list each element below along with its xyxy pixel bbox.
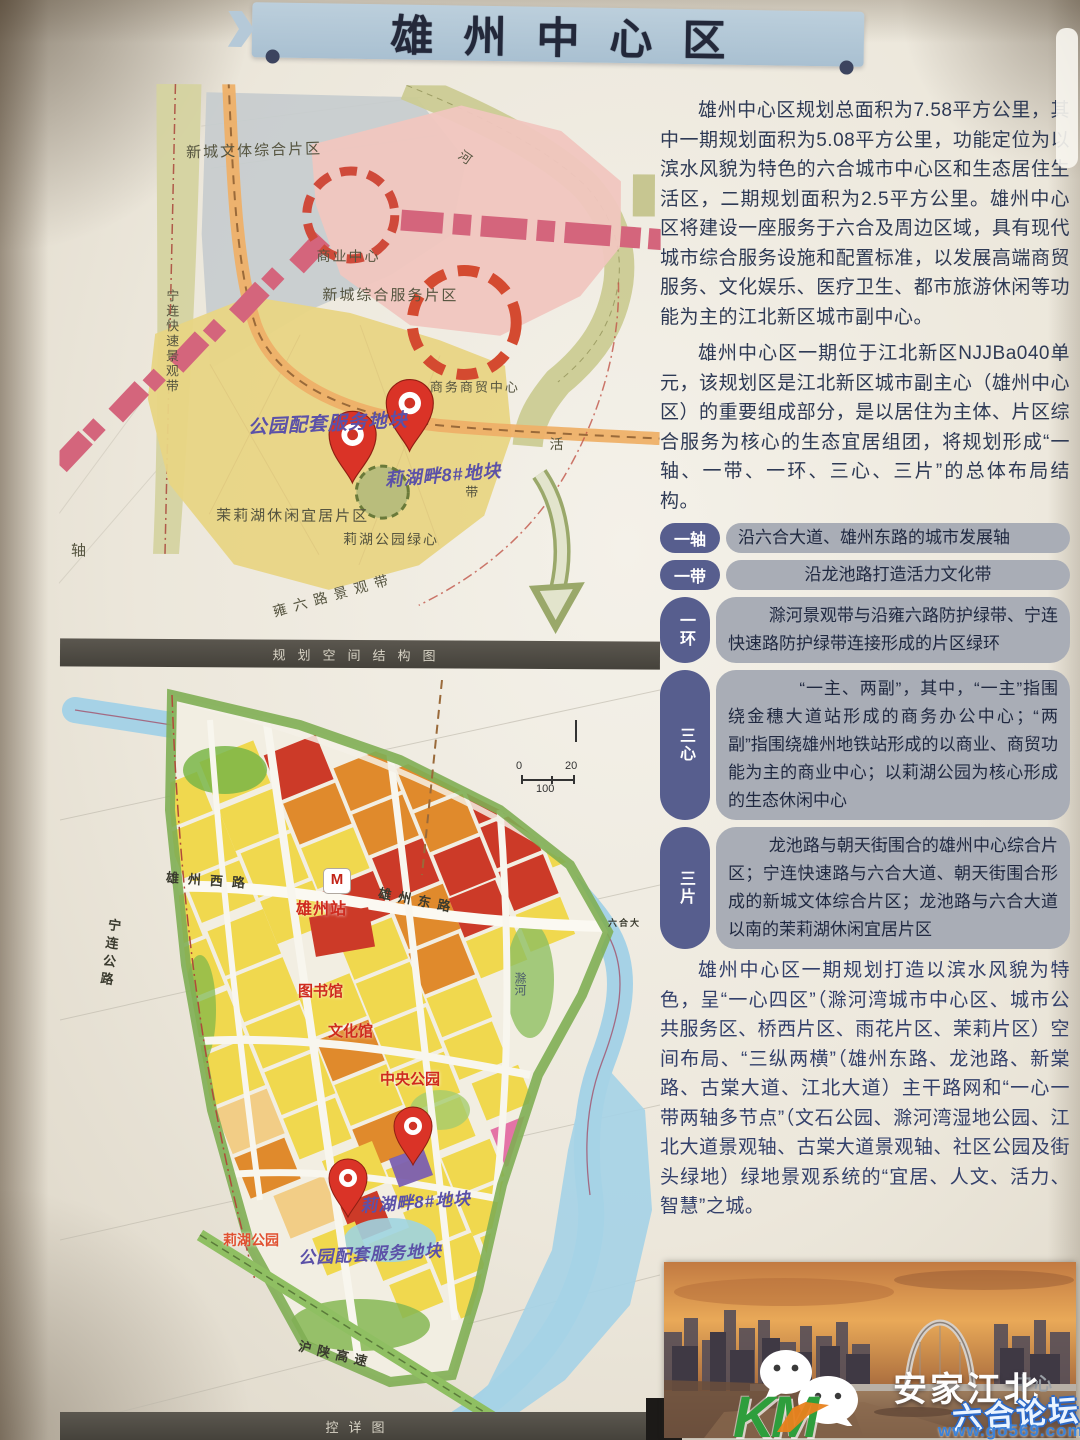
- structure-item-districts: 三片 龙池路与朝天街围合的雄州中心综合片区；宁连快速路与六合大道、朝天街围合形成…: [660, 827, 1070, 949]
- regulatory-plan-map: 雄州西路 M 雄州站 雄州东路 六合大 宁连公路 图书馆 文化馆 中央公园 莉湖…: [60, 680, 660, 1412]
- skyline-illustration: [664, 1262, 1076, 1438]
- planning-structure-map: 新城文体综合片区 商业中心 新城综合服务片区 商务商贸中心 公园配套服务地块 莉…: [59, 83, 662, 641]
- description-column: 雄州中心区规划总面积为7.58平方公里，其中一期规划面积为5.08平方公里，功能…: [660, 96, 1070, 1229]
- item-label: 一轴: [660, 523, 720, 553]
- map2-caption: 控详图: [60, 1412, 660, 1440]
- regulatory-plan-drawing: [60, 680, 660, 1412]
- item-text: 沿六合大道、雄州东路的城市发展轴: [726, 523, 1070, 553]
- item-label: 一环: [660, 597, 710, 663]
- poster-page: 雄州中心区: [0, 0, 1080, 1440]
- item-text: 龙池路与朝天街围合的雄州中心综合片区；宁连快速路与六合大道、朝天街围合形成的新城…: [716, 827, 1070, 949]
- item-label: 三片: [660, 827, 710, 949]
- item-text: 沿龙池路打造活力文化带: [726, 560, 1070, 590]
- metro-icon: M: [323, 868, 351, 894]
- planning-structure-drawing: [59, 83, 662, 641]
- banner-dot: [266, 49, 280, 63]
- city-skyline-photo: [664, 1262, 1076, 1438]
- structure-item-ring: 一环 滁河景观带与沿雍六路防护绿带、宁连快速路防护绿带连接形成的片区绿环: [660, 597, 1070, 663]
- structure-item-axis: 一轴 沿六合大道、雄州东路的城市发展轴: [660, 523, 1070, 553]
- structure-item-belt: 一带 沿龙池路打造活力文化带: [660, 560, 1070, 590]
- intro-paragraph-3: 雄州中心区一期规划打造以滨水风貌为特色，呈“一心四区”（滁河湾城市中心区、城市公…: [660, 956, 1070, 1222]
- item-label: 一带: [660, 560, 720, 590]
- banner-chevron-icon: [228, 11, 255, 47]
- page-title: 雄州中心区: [390, 1, 756, 69]
- scale-bar: [522, 720, 576, 784]
- flow-arrow-icon: [529, 474, 586, 634]
- page-edge-sliver: [1056, 28, 1078, 168]
- intro-paragraph-2: 雄州中心区一期位于江北新区NJJBa040单元，该规划区是江北新区城市副主心（雄…: [660, 339, 1070, 516]
- item-label: 三心: [660, 670, 710, 820]
- item-text: 滁河景观带与沿雍六路防护绿带、宁连快速路防护绿带连接形成的片区绿环: [716, 597, 1070, 663]
- title-banner: 雄州中心区: [252, 2, 865, 67]
- banner-dot: [839, 60, 853, 74]
- intro-paragraph-1: 雄州中心区规划总面积为7.58平方公里，其中一期规划面积为5.08平方公里，功能…: [660, 96, 1070, 332]
- item-text: “一主、两副”，其中，“一主”指围绕金穗大道站形成的商务办公中心；“两副”指围绕…: [716, 670, 1070, 820]
- map1-caption: 规划空间结构图: [60, 638, 660, 669]
- structure-item-cores: 三心 “一主、两副”，其中，“一主”指围绕金穗大道站形成的商务办公中心；“两副”…: [660, 670, 1070, 820]
